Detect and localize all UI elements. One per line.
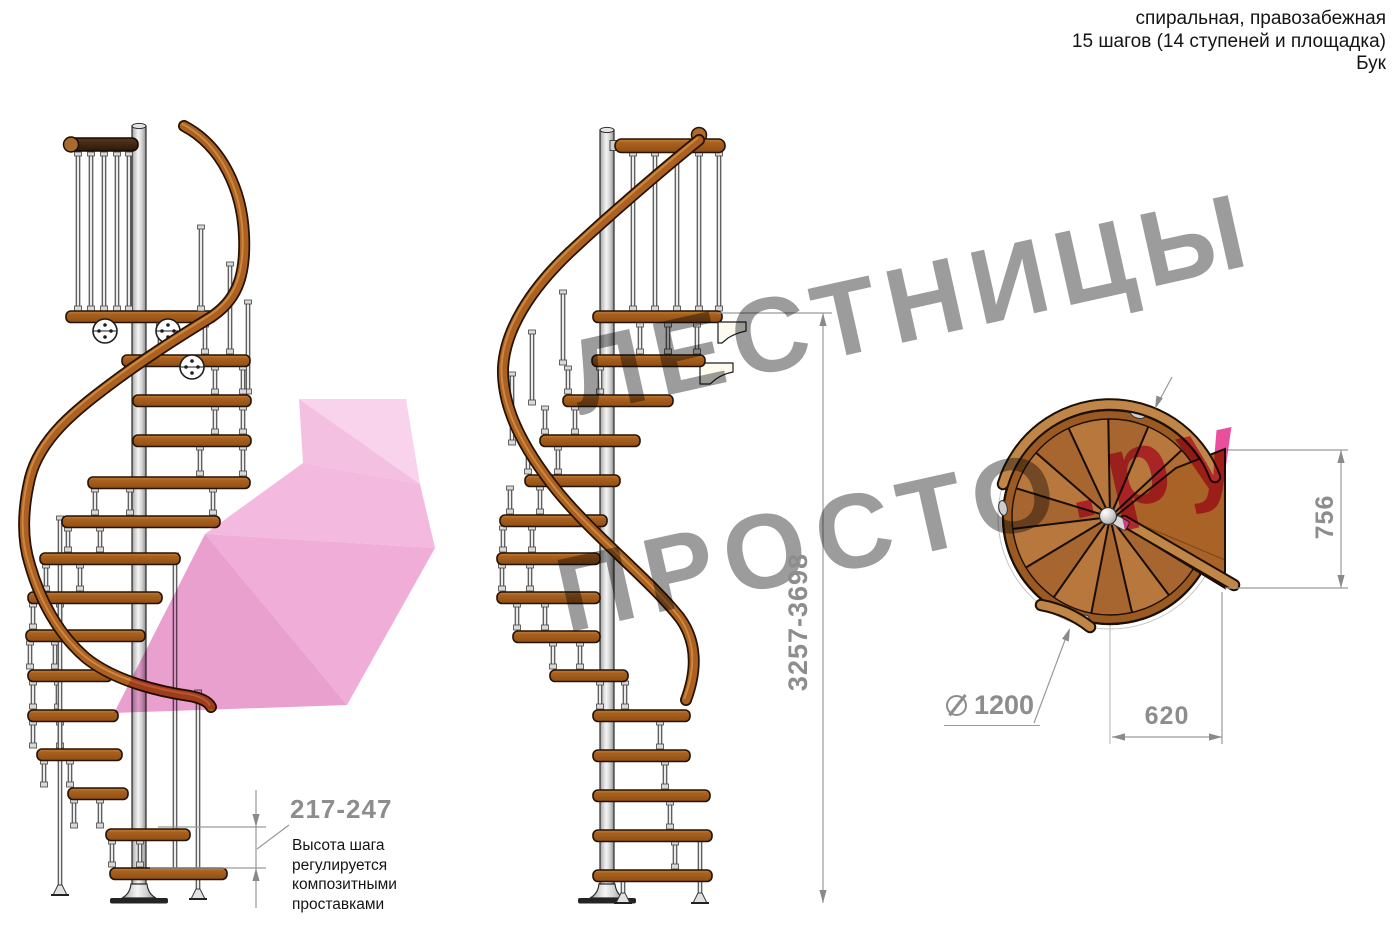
step-height-label: 217-247 (290, 794, 392, 825)
title-steps: 15 шагов (14 ступеней и площадка) (1072, 31, 1386, 54)
landing-depth-label: 756 (1311, 447, 1337, 587)
diameter-icon (946, 695, 967, 716)
diameter-value: 1200 (974, 690, 1034, 721)
plan-width-label: 620 (1112, 702, 1222, 731)
step-height-note: Высота шага регулируется композитными пр… (292, 836, 397, 914)
total-height-label: 3257-3698 (783, 512, 813, 732)
diameter-label: 1200 (944, 690, 1040, 726)
title-block: спиральная, правозабежная 15 шагов (14 с… (1072, 8, 1386, 76)
title-material: Бук (1072, 53, 1386, 76)
drawing-sheet: ЛЕСТНИЦЫ ПРОСТО.ру спиральная, правозабе… (0, 0, 1400, 951)
title-type: спиральная, правозабежная (1072, 8, 1386, 31)
